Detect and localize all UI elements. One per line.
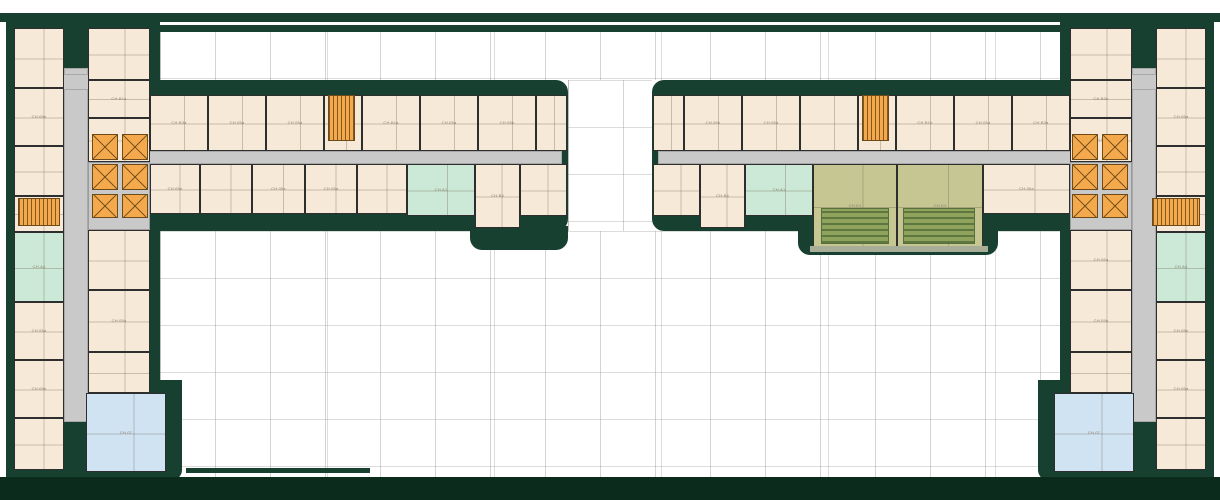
unit-CH.05a: CH.05a (420, 95, 478, 151)
unit-label: CH.05a (1019, 187, 1034, 191)
unit-CH.A4: CH.A4 (14, 232, 64, 302)
unit-CH.B3a: CH.B3a (1012, 95, 1070, 151)
unit-CH.A4: CH.A4 (1156, 232, 1206, 302)
unit-label: CH.B3a (1033, 121, 1048, 125)
unit-CH.B2b: CH.B2b (1070, 80, 1132, 118)
unit-CH.05a: CH.05a (88, 290, 150, 352)
left-bar-corridor (88, 151, 562, 164)
unit-CH.05b: CH.05b (14, 360, 64, 418)
unit-std (1070, 352, 1132, 393)
unit-label: CH.A1 (773, 188, 786, 192)
lift-core (1072, 164, 1098, 190)
unit-std (1156, 146, 1206, 196)
unit-CH.07: CH.07 (86, 393, 166, 472)
upper-court (160, 31, 1060, 80)
unit-CH.B1b: CH.B1b (896, 95, 954, 151)
unit-CH.B1a: CH.B1a (362, 95, 420, 151)
stair-core (1152, 198, 1200, 226)
unit-label: CH.A1 (435, 188, 448, 192)
unit-label: CH.05a (32, 329, 47, 333)
unit-CH.05a: CH.05a (1156, 360, 1206, 418)
unit-label: CH.05b (1094, 319, 1109, 323)
unit-label: CH.B1a (383, 121, 398, 125)
unit-CH.05a: CH.05a (1070, 230, 1132, 290)
unit-CH.05a: CH.05a (742, 95, 800, 151)
lift-core (122, 134, 148, 160)
lift-core (1102, 164, 1128, 190)
stair-core (18, 198, 60, 226)
unit-label: CH.05e (271, 187, 286, 191)
unit-CH.05e: CH.05e (252, 164, 305, 214)
unit-std (1156, 418, 1206, 470)
lower-court (160, 231, 1060, 477)
unit-CH.B1a: CH.B1a (88, 80, 150, 118)
unit-CH.05b: CH.05b (478, 95, 536, 151)
unit-std (88, 352, 150, 393)
unit-std (653, 164, 700, 216)
unit-std (1070, 28, 1132, 80)
stair-core (862, 95, 889, 141)
unit-CH.05e: CH.05e (1156, 302, 1206, 360)
left-wing-corridor (64, 68, 88, 422)
top-canopy-band (0, 13, 1220, 22)
terrace-garden (821, 208, 889, 244)
unit-CH.B4: CH.B4 (475, 164, 520, 228)
unit-label: CH.07 (1088, 431, 1100, 435)
unit-std (1156, 28, 1206, 88)
lift-core (122, 194, 148, 218)
unit-label: CH.05a (976, 121, 991, 125)
unit-CH.B3a: CH.B3a (150, 95, 208, 151)
unit-CH.05a: CH.05a (266, 95, 324, 151)
unit-label: CH.05a (230, 121, 245, 125)
unit-std (653, 95, 684, 151)
unit-label: CH.B1a (111, 97, 126, 101)
unit-label: CH.B1b (917, 121, 932, 125)
unit-label: CH.A4 (33, 265, 46, 269)
unit-std (14, 418, 64, 470)
lift-core (1072, 194, 1098, 218)
top-court-edge-band (150, 25, 1064, 32)
unit-label: CH.05a (1174, 115, 1189, 119)
unit-label: CH.07 (120, 431, 132, 435)
stair-core (328, 95, 355, 141)
unit-std (88, 28, 150, 80)
unit-CH.05a: CH.05a (983, 164, 1070, 214)
lift-core (1102, 134, 1128, 160)
unit-label: CH.05a (442, 121, 457, 125)
unit-std (200, 164, 252, 214)
unit-CH.05b: CH.05b (684, 95, 742, 151)
unit-CH.05a: CH.05a (1156, 88, 1206, 146)
unit-CH.05a: CH.05a (14, 302, 64, 360)
unit-label: CH.05a (324, 187, 339, 191)
unit-label: CH.05a (1174, 387, 1189, 391)
bottom-band (0, 477, 1220, 500)
unit-std (800, 95, 858, 151)
lift-core (92, 164, 118, 190)
unit-label: CH.05b (500, 121, 515, 125)
unit-label: CH.A4 (1175, 265, 1188, 269)
right-wing-corridor (1132, 68, 1156, 422)
center-gap-court (568, 80, 652, 231)
unit-label: CH.05b (32, 115, 47, 119)
lift-core (1102, 194, 1128, 218)
unit-CH.05e: CH.05e (150, 164, 200, 214)
terrace-sill (810, 246, 988, 252)
unit-label: CH.05e (1174, 329, 1189, 333)
lift-core (92, 134, 118, 160)
unit-CH.07: CH.07 (1054, 393, 1134, 472)
unit-label: CH.05a (288, 121, 303, 125)
unit-CH.05a: CH.05a (208, 95, 266, 151)
terrace-garden (903, 208, 975, 244)
unit-CH.05b: CH.05b (14, 88, 64, 146)
bottom-edge-line (186, 468, 370, 473)
lift-core (1072, 134, 1098, 160)
unit-label: CH.B4 (716, 194, 729, 198)
unit-label: CH.05b (706, 121, 721, 125)
unit-CH.05b: CH.05b (1070, 290, 1132, 352)
unit-label: CH.05b (32, 387, 47, 391)
unit-std (520, 164, 567, 216)
unit-CH.A1: CH.A1 (745, 164, 813, 216)
unit-std (536, 95, 567, 151)
unit-label: CH.B3a (171, 121, 186, 125)
unit-std (357, 164, 407, 214)
lift-core (122, 164, 148, 190)
unit-std (88, 230, 150, 290)
unit-std (14, 146, 64, 196)
floor-plan-canvas: CH.05bCH.A4CH.05aCH.05bCH.B1aCH.05aCH.07… (0, 0, 1220, 500)
unit-label: CH.05a (764, 121, 779, 125)
unit-label: CH.05e (168, 187, 183, 191)
unit-CH.A1: CH.A1 (407, 164, 475, 216)
left-bar-step (470, 226, 568, 250)
right-bar-corridor (658, 151, 1132, 164)
unit-CH.B4: CH.B4 (700, 164, 745, 228)
lift-core (92, 194, 118, 218)
unit-label: CH.B4 (491, 194, 504, 198)
unit-CH.05a: CH.05a (305, 164, 357, 214)
unit-label: CH.05a (112, 319, 127, 323)
unit-CH.05a: CH.05a (954, 95, 1012, 151)
unit-label: CH.05a (1094, 258, 1109, 262)
unit-std (14, 28, 64, 88)
unit-label: CH.B2b (1093, 97, 1108, 101)
